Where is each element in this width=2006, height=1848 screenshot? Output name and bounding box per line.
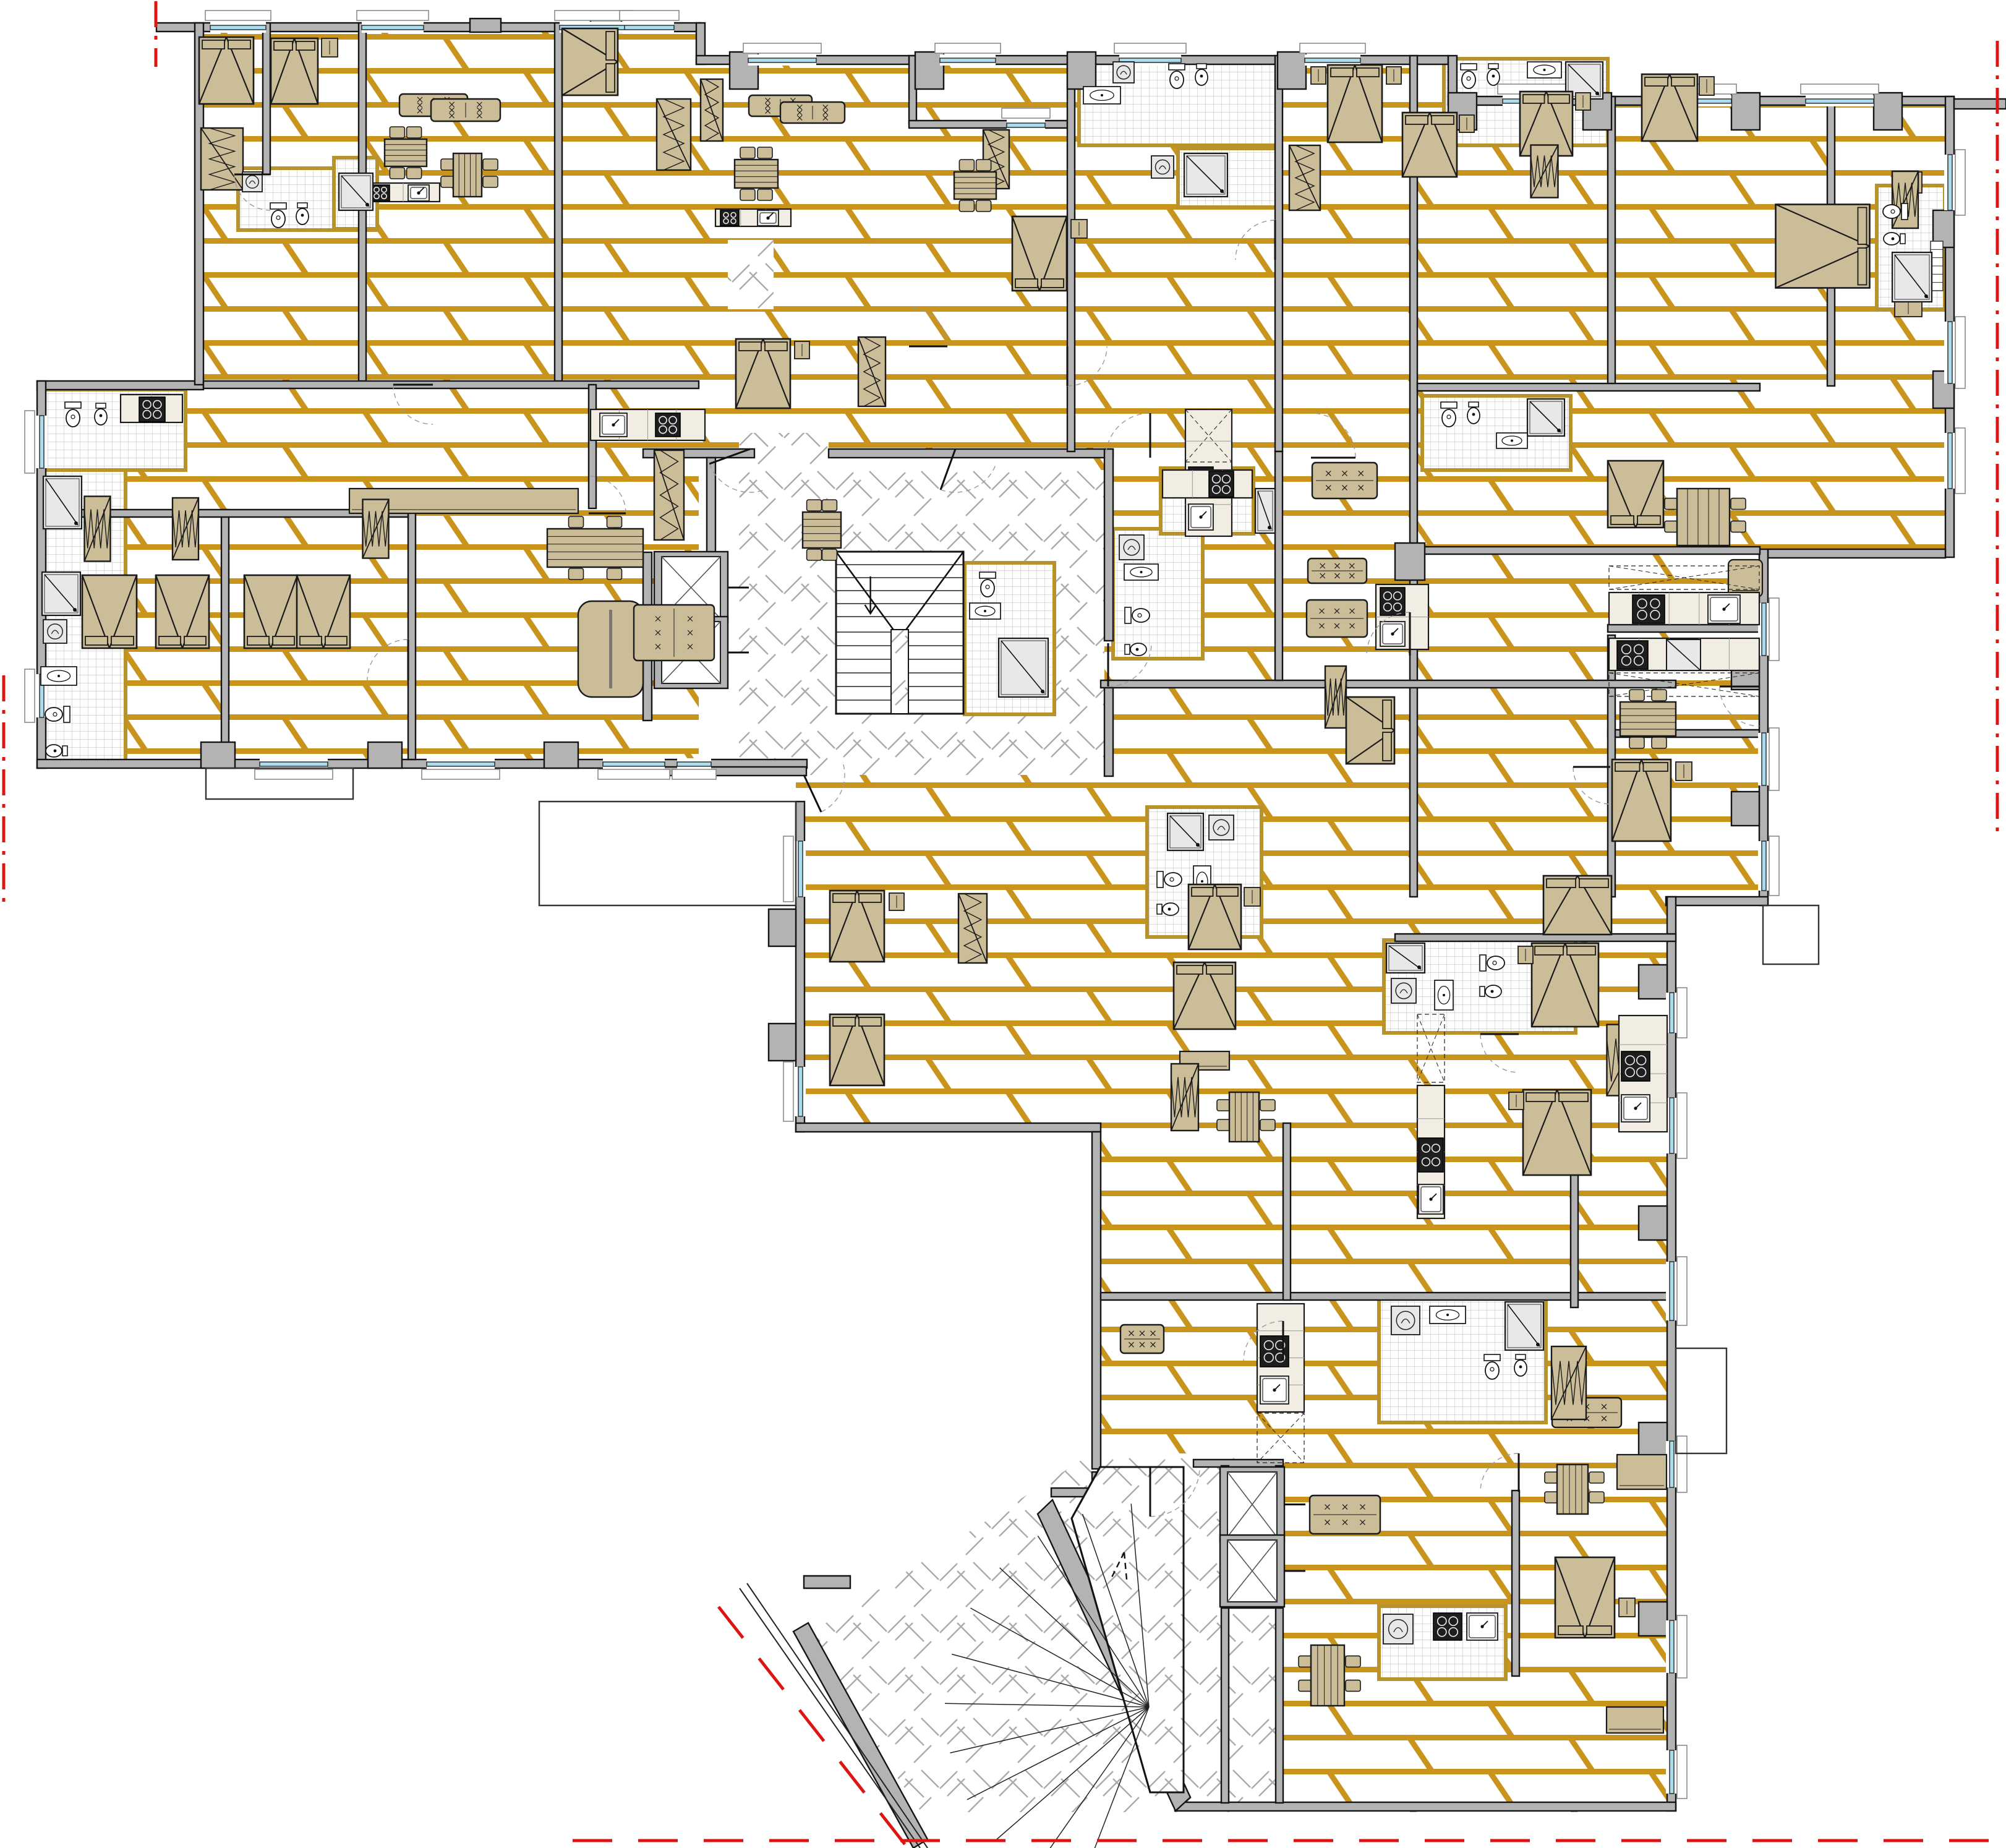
pillow	[1548, 95, 1570, 103]
window	[1944, 317, 1965, 388]
chair	[1652, 690, 1667, 701]
pillow	[1559, 1093, 1588, 1102]
bidet	[1157, 903, 1179, 915]
window	[783, 1062, 806, 1121]
window	[25, 411, 47, 473]
pillow	[1217, 888, 1239, 896]
bed	[271, 38, 318, 104]
sofa	[634, 605, 714, 661]
structural-pier	[1278, 52, 1306, 89]
toilet	[1480, 955, 1504, 971]
bed	[1642, 74, 1697, 141]
chair	[407, 168, 422, 179]
washbasin	[1124, 564, 1158, 580]
shower	[339, 173, 373, 210]
structural-pier	[769, 909, 796, 946]
kitchen-counter	[1163, 470, 1252, 498]
bidet	[1467, 402, 1480, 424]
cooktop	[139, 397, 165, 422]
wardrobe	[1325, 666, 1346, 728]
bed	[1189, 884, 1241, 949]
wardrobe	[1531, 145, 1558, 198]
wall	[1104, 680, 1113, 776]
bed	[1402, 113, 1457, 177]
window	[1666, 1615, 1687, 1678]
wardrobe	[958, 894, 987, 963]
wall	[1666, 897, 1768, 905]
structural-pier	[1731, 792, 1759, 826]
cooktop	[1621, 1051, 1650, 1081]
cooktop	[1633, 595, 1665, 623]
wardrobe	[1289, 145, 1320, 210]
structural-pier	[1067, 52, 1096, 89]
toilet	[1484, 1354, 1500, 1379]
chair	[407, 127, 422, 138]
nightstand	[1386, 67, 1401, 84]
window	[1758, 598, 1779, 661]
floor-finishes-layer	[46, 25, 1945, 1812]
cistern	[1484, 1354, 1500, 1361]
chair	[959, 160, 974, 171]
washing-machine	[1151, 156, 1174, 178]
bidet	[1487, 64, 1500, 85]
wall	[1101, 680, 1676, 688]
shower	[1527, 399, 1564, 436]
wall	[555, 23, 562, 385]
pillow	[1523, 95, 1545, 103]
pillow	[765, 342, 787, 351]
fridge	[1667, 640, 1701, 670]
pillow	[1331, 68, 1353, 77]
structural-pier	[470, 19, 501, 32]
main-staircase	[836, 552, 963, 714]
chair	[1731, 498, 1746, 510]
toilet	[1461, 64, 1477, 88]
window	[1666, 988, 1687, 1038]
sofa	[780, 102, 845, 123]
bed	[1612, 759, 1671, 841]
bed	[199, 37, 254, 104]
bed	[1012, 216, 1067, 291]
shower	[42, 572, 80, 615]
wardrobe	[363, 500, 389, 558]
wall	[1092, 1132, 1101, 1469]
kitchen-sink	[600, 413, 627, 437]
pillow	[228, 40, 250, 49]
drain	[1041, 690, 1044, 693]
cooktop	[1617, 641, 1648, 669]
washing-machine	[1113, 62, 1134, 83]
bed	[297, 575, 350, 648]
chair	[1260, 1100, 1275, 1111]
chair	[1589, 1492, 1604, 1503]
window	[1666, 1745, 1687, 1799]
cistern	[1169, 64, 1185, 70]
window	[1758, 728, 1779, 790]
pillow	[1041, 279, 1064, 288]
wall	[1104, 449, 1113, 641]
toilet	[980, 572, 996, 597]
bidet	[1195, 64, 1208, 85]
shower	[43, 476, 82, 529]
wall	[1768, 549, 1945, 558]
sofa	[1307, 600, 1367, 637]
drain	[1220, 189, 1224, 193]
pillow	[111, 636, 134, 645]
wardrobe	[654, 450, 684, 540]
wall	[263, 23, 270, 174]
drain	[73, 608, 77, 612]
washing-machine	[1391, 978, 1416, 1003]
armchair	[1728, 560, 1762, 597]
pillow	[273, 636, 294, 645]
chair	[807, 500, 822, 511]
kitchen-sink	[1621, 1095, 1650, 1122]
wall	[1193, 1460, 1283, 1467]
bidet	[1125, 643, 1146, 656]
wardrobe	[858, 337, 886, 406]
chair	[607, 516, 622, 528]
drain	[1595, 92, 1599, 95]
washbasin	[970, 603, 1001, 619]
chair	[569, 568, 584, 580]
washbasin	[41, 667, 77, 685]
bidet	[1884, 233, 1905, 245]
pillow	[1383, 732, 1391, 761]
pillow	[1192, 888, 1213, 896]
wall	[1417, 383, 1760, 391]
chair	[976, 200, 991, 212]
pillow	[325, 636, 347, 645]
kitchen-sink	[1260, 1376, 1289, 1404]
sideboard	[1617, 1455, 1667, 1489]
wall	[1417, 547, 1760, 554]
pillow	[606, 64, 615, 92]
cooktop	[371, 185, 390, 201]
kitchen-sink	[408, 185, 429, 201]
nightstand	[1459, 115, 1474, 132]
nightstand	[1509, 1092, 1524, 1110]
pillow	[85, 636, 108, 645]
structural-pier	[1731, 93, 1760, 130]
toilet	[1169, 64, 1185, 88]
wall	[1101, 1293, 1676, 1300]
structural-pier	[1639, 1206, 1667, 1240]
floor-plan-page	[0, 0, 2006, 1848]
window	[1758, 836, 1779, 896]
washing-machine	[1119, 535, 1144, 560]
balcony-outline	[539, 802, 796, 905]
nightstand	[1576, 93, 1590, 110]
wall	[203, 381, 699, 388]
bed	[1532, 943, 1598, 1027]
cistern	[1157, 871, 1163, 888]
structural-pier	[1874, 93, 1902, 130]
window	[357, 11, 429, 33]
chair	[1629, 737, 1644, 748]
window	[620, 11, 679, 33]
pillow	[1015, 279, 1038, 288]
chair	[483, 176, 498, 187]
pillow	[1206, 965, 1232, 974]
structural-pier	[201, 742, 235, 768]
pillow	[1383, 700, 1391, 729]
bed	[1174, 962, 1236, 1029]
bed	[1328, 65, 1382, 142]
drain	[1196, 843, 1200, 847]
chair	[758, 147, 772, 158]
window	[1801, 84, 1879, 106]
cistern	[1480, 955, 1486, 971]
washing-machine	[1383, 1614, 1413, 1644]
nightstand	[1676, 762, 1692, 781]
window	[743, 43, 821, 66]
bed	[830, 891, 884, 962]
wall	[1175, 1802, 1676, 1811]
pillow	[184, 636, 206, 645]
wardrobe	[657, 99, 691, 170]
nightstand	[1071, 220, 1087, 238]
pillow	[1644, 763, 1668, 771]
nightstand	[1619, 1598, 1635, 1617]
wall	[408, 510, 416, 759]
pillow	[1637, 516, 1660, 524]
wall	[1283, 1123, 1291, 1300]
pillow	[1177, 965, 1203, 974]
wardrobe	[1171, 1064, 1198, 1131]
kitchen-sink	[1708, 595, 1740, 623]
cooktop	[1209, 471, 1234, 497]
cooktop	[1419, 1138, 1443, 1172]
cistern	[1125, 607, 1131, 623]
sofa	[1120, 1325, 1164, 1353]
bed	[562, 28, 618, 95]
chair	[758, 189, 772, 200]
shower	[1386, 943, 1425, 973]
chair	[483, 159, 498, 170]
toilet	[1441, 402, 1457, 427]
pillow	[1526, 1093, 1555, 1102]
window	[1300, 43, 1365, 66]
cooktop	[1433, 1613, 1462, 1640]
wall	[1395, 934, 1676, 941]
structural-pier	[1639, 1422, 1667, 1457]
wall	[1608, 96, 1615, 390]
pillow	[1406, 116, 1428, 124]
structural-pier	[368, 742, 402, 768]
chair	[1346, 1680, 1360, 1692]
pillow	[1858, 248, 1867, 285]
bidet	[1480, 985, 1501, 998]
structural-pier	[1639, 1602, 1667, 1636]
pillow	[1567, 946, 1595, 955]
structural-pier	[1639, 965, 1667, 999]
pillow	[1615, 763, 1640, 771]
drain	[74, 521, 78, 525]
drain	[1557, 429, 1561, 432]
room-parquet-floor	[1410, 99, 1945, 554]
bed	[830, 1014, 884, 1085]
chair	[1652, 737, 1667, 748]
pillow	[739, 342, 761, 351]
nightstand	[1699, 77, 1714, 95]
wardrobe	[1551, 1346, 1586, 1419]
chair	[1629, 690, 1644, 701]
bed	[736, 339, 790, 408]
pillow	[300, 636, 322, 645]
washing-machine	[1209, 815, 1234, 840]
toilet	[1883, 203, 1908, 220]
wall	[1410, 56, 1417, 897]
pillow	[1579, 879, 1608, 888]
kitchen-sink	[1189, 504, 1213, 530]
chair	[1589, 1472, 1604, 1483]
pillow	[1587, 1626, 1611, 1635]
pillow	[859, 894, 881, 902]
cistern	[1441, 402, 1457, 408]
window	[783, 836, 806, 902]
chair	[390, 127, 404, 138]
pillow	[606, 32, 615, 60]
window	[672, 758, 716, 779]
wardrobe	[173, 498, 198, 560]
cistern	[270, 203, 286, 209]
cistern	[980, 572, 996, 578]
balcony-outline	[1763, 905, 1819, 964]
pillow	[1671, 77, 1694, 86]
dining-table	[803, 500, 841, 560]
shower	[1167, 813, 1203, 850]
bidet	[1514, 1354, 1527, 1376]
wardrobe	[201, 128, 243, 190]
wall	[589, 385, 596, 508]
pillow	[247, 636, 269, 645]
structural-pier	[544, 742, 578, 768]
washbasin	[1430, 1306, 1466, 1324]
nightstand	[322, 38, 338, 57]
nightstand	[1518, 946, 1533, 964]
wall	[796, 1123, 1101, 1132]
chair	[569, 516, 584, 528]
bidet	[296, 203, 309, 225]
toilet	[1125, 607, 1150, 623]
cooktop	[1260, 1336, 1289, 1367]
toilet	[45, 706, 70, 722]
bed	[1543, 876, 1611, 935]
kitchen-sink	[1467, 1613, 1498, 1640]
kitchen-sink	[1419, 1184, 1443, 1214]
pillow	[833, 1017, 855, 1026]
chair	[976, 160, 991, 171]
washbasin	[1527, 62, 1561, 78]
pillow	[1547, 879, 1576, 888]
window	[1666, 1093, 1687, 1158]
pillow	[296, 41, 315, 50]
toilet	[1157, 871, 1182, 888]
shower	[1505, 1302, 1543, 1350]
toilet	[270, 203, 286, 228]
angled-wall	[804, 1576, 850, 1588]
wall	[221, 510, 229, 759]
pillow	[1357, 68, 1379, 77]
window	[1944, 150, 1965, 215]
pillow	[274, 41, 292, 50]
pillow	[859, 1017, 881, 1026]
lobby-herringbone-floor	[728, 240, 774, 309]
wall	[1067, 56, 1075, 451]
wall	[1608, 625, 1759, 632]
window	[1944, 428, 1965, 494]
window	[935, 43, 1001, 66]
wardrobe	[85, 497, 111, 562]
bed	[1776, 205, 1870, 288]
wall	[707, 458, 715, 554]
washbasin	[1435, 980, 1453, 1010]
chair	[807, 549, 822, 560]
pillow	[1558, 1626, 1583, 1635]
drain	[365, 203, 369, 207]
kitchen-sink	[758, 210, 779, 226]
sofa	[1310, 1495, 1380, 1534]
structural-pier	[1395, 543, 1425, 580]
wall	[1512, 1491, 1519, 1676]
sofa	[1312, 463, 1377, 498]
window	[598, 758, 670, 779]
wall	[37, 381, 203, 390]
apartment-building-floor-plan	[0, 0, 2006, 1848]
nightstand	[795, 341, 809, 359]
window	[422, 758, 500, 779]
cooktop	[655, 413, 680, 437]
drain	[1417, 965, 1421, 969]
bed	[156, 575, 209, 648]
chair	[822, 549, 837, 560]
bed	[1608, 461, 1663, 528]
washing-machine	[1391, 1306, 1420, 1335]
sofa	[1308, 558, 1367, 583]
pillow	[1432, 116, 1454, 124]
drain	[1268, 526, 1271, 529]
washing-machine	[43, 620, 67, 643]
chair	[740, 189, 755, 200]
cooktop	[1380, 588, 1405, 615]
pillow	[159, 636, 181, 645]
nightstand	[1311, 67, 1326, 84]
drain	[1924, 294, 1928, 298]
pillow	[1535, 946, 1563, 955]
pillow	[1858, 208, 1867, 245]
wardrobe	[701, 79, 723, 141]
nightstand	[1244, 888, 1260, 906]
sofa	[431, 99, 500, 121]
window	[205, 11, 271, 33]
cistern	[64, 706, 70, 722]
shower	[1255, 489, 1275, 533]
wall	[1275, 56, 1283, 451]
washbasin	[1496, 433, 1527, 448]
pillow	[1611, 516, 1634, 524]
shower	[1892, 252, 1932, 302]
shower	[999, 638, 1048, 697]
cistern	[1461, 64, 1477, 70]
toilet	[65, 402, 81, 427]
washbasin	[1083, 87, 1120, 104]
bed	[1346, 697, 1394, 764]
window	[1002, 108, 1050, 130]
chair	[607, 568, 622, 580]
pillow	[1645, 77, 1668, 86]
cooktop	[720, 210, 739, 226]
